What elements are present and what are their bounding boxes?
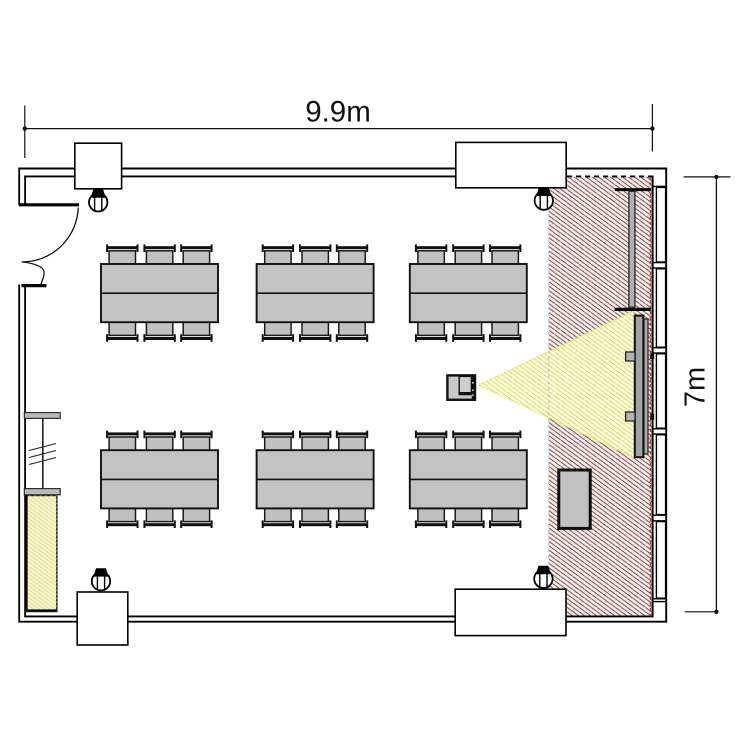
svg-text:7m: 7m xyxy=(680,367,712,407)
svg-text:9.9m: 9.9m xyxy=(305,96,371,129)
